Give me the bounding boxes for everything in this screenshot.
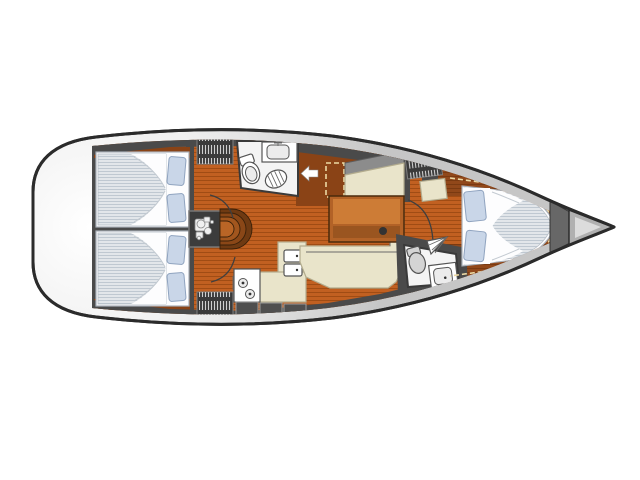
aft-head bbox=[237, 141, 298, 196]
interior bbox=[88, 134, 588, 326]
floor-plan-canvas: Sailboat interior floor plan (top view, … bbox=[0, 0, 640, 480]
pillow-icon bbox=[463, 190, 486, 222]
pillow-icon bbox=[167, 272, 186, 301]
yacht-floor-plan: Sailboat interior floor plan (top view, … bbox=[0, 0, 640, 480]
pillow-icon bbox=[167, 235, 186, 264]
aft-cabin-starboard-berth bbox=[96, 231, 189, 306]
forward-cabin-seat bbox=[420, 178, 447, 201]
pillow-icon bbox=[463, 230, 486, 262]
pillow-icon bbox=[167, 156, 186, 185]
sink-icon bbox=[262, 142, 297, 162]
aft-cabin-divider bbox=[92, 227, 192, 231]
bow bbox=[550, 201, 613, 253]
companionway bbox=[189, 209, 252, 249]
forward-berth bbox=[450, 178, 555, 276]
hanging-locker-icon bbox=[197, 137, 233, 164]
table-pedestal bbox=[379, 227, 387, 235]
pillow-icon bbox=[167, 193, 186, 222]
aft-cabin-port-berth bbox=[96, 152, 189, 227]
stove-icon bbox=[233, 269, 260, 302]
table-icon bbox=[329, 196, 404, 242]
